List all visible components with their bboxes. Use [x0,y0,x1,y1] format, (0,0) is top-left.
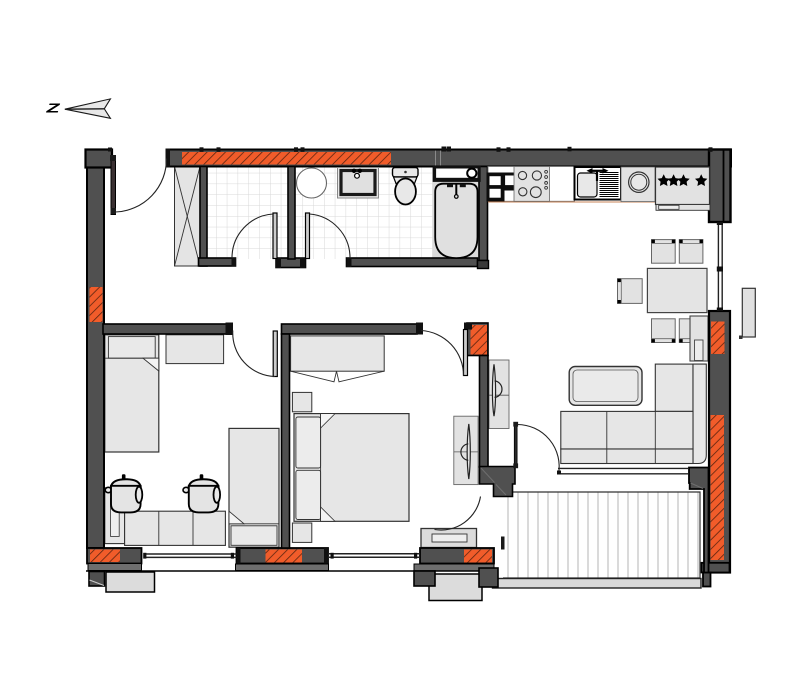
svg-text:Z: Z [45,101,61,116]
